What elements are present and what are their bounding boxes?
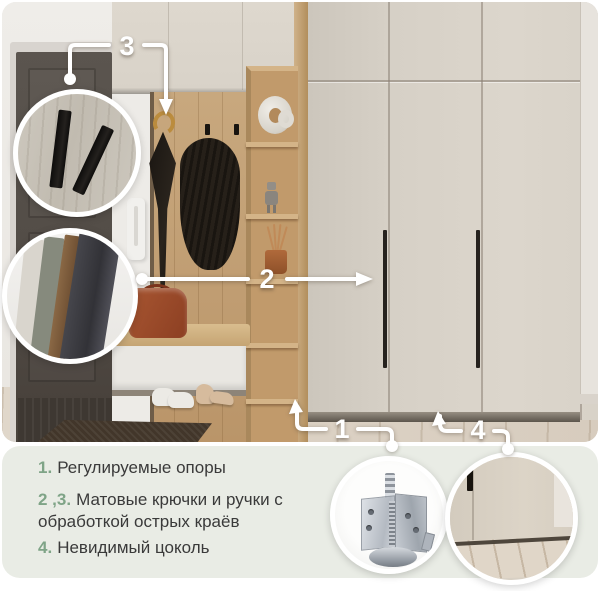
bracket-hole — [405, 513, 411, 519]
cabinet-seam — [168, 2, 169, 90]
bracket-hole — [366, 525, 372, 531]
wall-edge — [554, 457, 573, 527]
shelf-board — [246, 343, 298, 348]
bench-drawer — [112, 346, 246, 390]
wood-grain — [18, 94, 136, 212]
intercom-slot — [134, 206, 138, 246]
legend-number: 1. — [38, 458, 52, 477]
robot-figurine — [267, 205, 270, 213]
legend-item-1: 1.Регулируемые опоры — [38, 457, 368, 479]
legend-text: Регулируемые опоры — [57, 458, 226, 477]
callout-number-1: 1 — [324, 414, 360, 444]
shelf-board — [246, 399, 298, 404]
wall-right-of-wardrobe — [580, 2, 598, 404]
wardrobe-seam — [481, 2, 483, 420]
legend-item-2-3: 2 ,3.Матовые крючки и ручки с обработкой… — [38, 489, 368, 533]
callout-number-2: 2 — [249, 264, 285, 294]
leveler-rod — [389, 501, 395, 549]
hook-closeup-circle — [13, 89, 141, 217]
hallway-photo — [2, 2, 598, 442]
handles-closeup-circle — [2, 228, 138, 364]
coat-hook — [234, 124, 239, 135]
callout-number-3: 3 — [109, 31, 145, 61]
shelf-board — [246, 214, 298, 219]
robot-figurine — [267, 182, 276, 190]
leveler-foot-base — [369, 547, 417, 567]
plinth-closeup-circle — [445, 452, 578, 585]
bracket-hole — [413, 527, 419, 533]
wardrobe-handle — [476, 230, 480, 368]
baseboard — [580, 394, 598, 404]
shelf-board — [246, 142, 298, 147]
robot-figurine — [265, 191, 278, 205]
cabinet-seam — [242, 2, 243, 90]
bracket-hole — [368, 509, 374, 515]
legend-text: Невидимый цоколь — [57, 538, 209, 557]
sneaker — [168, 392, 194, 408]
coat-hook — [205, 124, 210, 135]
wardrobe — [308, 2, 598, 420]
handle-bottom — [467, 469, 473, 491]
legend-item-4: 4.Невидимый цоколь — [38, 537, 368, 559]
leveler-foot-closeup-circle — [330, 456, 448, 574]
callout-number-4: 4 — [460, 415, 496, 445]
wardrobe-seam — [308, 80, 598, 82]
wardrobe-handle — [383, 230, 387, 368]
legend-number: 2 ,3. — [38, 490, 71, 509]
hanging-coat — [180, 138, 240, 270]
legend-number: 4. — [38, 538, 52, 557]
wardrobe-seam — [388, 2, 390, 420]
robot-figurine — [273, 205, 276, 213]
donut-vase-ring — [278, 110, 294, 128]
product-card: 1.Регулируемые опоры 2 ,3.Матовые крючки… — [0, 0, 600, 591]
legend-text: Матовые крючки и ручки с обработкой остр… — [38, 490, 283, 531]
